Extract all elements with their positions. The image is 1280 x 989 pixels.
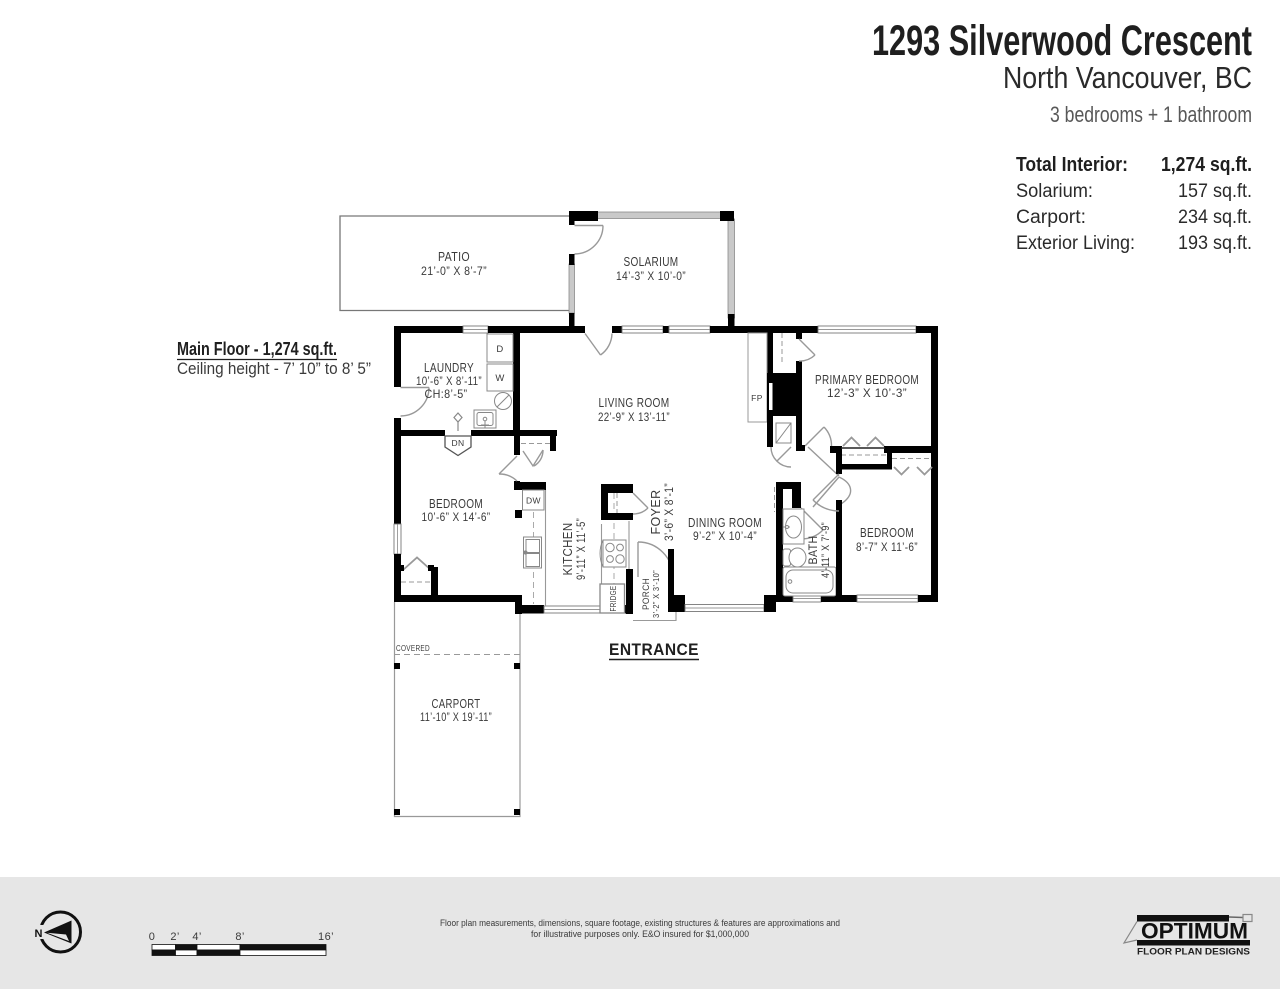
svg-text:3’-6” X 8’-1”: 3’-6” X 8’-1”: [662, 483, 676, 541]
svg-text:DN: DN: [451, 438, 464, 448]
svg-text:Main Floor - 1,274 sq.ft.: Main Floor - 1,274 sq.ft.: [177, 339, 337, 359]
svg-text:Solarium:: Solarium:: [1016, 181, 1093, 202]
svg-text:8’: 8’: [235, 931, 244, 943]
svg-text:22’-9” X 13’-11”: 22’-9” X 13’-11”: [598, 410, 670, 424]
svg-text:Carport:: Carport:: [1016, 207, 1086, 228]
svg-text:for illustrative purposes only: for illustrative purposes only. E&O insu…: [531, 929, 749, 940]
svg-text:Exterior Living:: Exterior Living:: [1016, 233, 1135, 254]
svg-text:BEDROOM: BEDROOM: [860, 526, 914, 540]
svg-text:21’-0” X 8’-7”: 21’-0” X 8’-7”: [421, 264, 487, 278]
svg-text:LAUNDRY: LAUNDRY: [424, 361, 474, 375]
svg-text:North Vancouver, BC: North Vancouver, BC: [1003, 60, 1252, 95]
svg-text:ENTRANCE: ENTRANCE: [609, 641, 699, 659]
svg-text:3 bedrooms + 1 bathroom: 3 bedrooms + 1 bathroom: [1050, 102, 1252, 127]
svg-text:FOYER: FOYER: [649, 490, 663, 535]
svg-text:KITCHEN: KITCHEN: [561, 523, 575, 576]
svg-text:DW: DW: [526, 496, 541, 506]
svg-text:11’-10” X 19’-11”: 11’-10” X 19’-11”: [420, 710, 492, 724]
svg-text:OPTIMUM: OPTIMUM: [1141, 919, 1248, 944]
svg-text:193 sq.ft.: 193 sq.ft.: [1178, 233, 1252, 254]
svg-text:SOLARIUM: SOLARIUM: [624, 255, 679, 269]
svg-text:CH:8’-5”: CH:8’-5”: [425, 387, 468, 401]
svg-text:9’-2” X 10’-4”: 9’-2” X 10’-4”: [693, 529, 757, 543]
svg-text:FP: FP: [751, 393, 763, 403]
svg-text:12’-3” X 10’-3”: 12’-3” X 10’-3”: [827, 386, 907, 400]
svg-text:10’-6” X 8’-11”: 10’-6” X 8’-11”: [416, 374, 482, 388]
svg-text:D: D: [496, 344, 503, 355]
svg-text:BEDROOM: BEDROOM: [429, 497, 483, 511]
svg-text:FLOOR PLAN DESIGNS: FLOOR PLAN DESIGNS: [1137, 947, 1250, 958]
svg-text:14’-3” X 10’-0”: 14’-3” X 10’-0”: [616, 269, 686, 283]
svg-text:0: 0: [149, 931, 156, 943]
svg-text:Ceiling height - 7’ 10” to 8’: Ceiling height - 7’ 10” to 8’ 5”: [177, 359, 371, 378]
svg-text:9’-11” X 11’-5”: 9’-11” X 11’-5”: [574, 518, 588, 580]
svg-text:8’-7” X 11’-6”: 8’-7” X 11’-6”: [856, 540, 918, 554]
svg-text:3’-2” X 3’-10”: 3’-2” X 3’-10”: [651, 570, 661, 618]
svg-text:PATIO: PATIO: [438, 250, 470, 264]
svg-text:N: N: [35, 928, 43, 940]
svg-text:234 sq.ft.: 234 sq.ft.: [1178, 207, 1252, 228]
svg-text:COVERED: COVERED: [396, 643, 430, 653]
svg-text:2’: 2’: [170, 931, 179, 943]
svg-text:BATH: BATH: [808, 536, 820, 565]
svg-text:1,274 sq.ft.: 1,274 sq.ft.: [1161, 154, 1252, 176]
svg-text:4’-11” X 7’-9”: 4’-11” X 7’-9”: [820, 522, 832, 578]
svg-text:16’: 16’: [318, 931, 334, 943]
svg-text:4’: 4’: [192, 931, 201, 943]
svg-text:W: W: [495, 373, 504, 384]
svg-text:157 sq.ft.: 157 sq.ft.: [1178, 181, 1252, 202]
svg-text:DINING ROOM: DINING ROOM: [688, 516, 762, 530]
svg-text:10’-6” X 14’-6”: 10’-6” X 14’-6”: [422, 510, 491, 524]
svg-text:PRIMARY BEDROOM: PRIMARY BEDROOM: [815, 373, 919, 387]
svg-text:Floor plan measurements, dimen: Floor plan measurements, dimensions, squ…: [440, 918, 840, 929]
svg-text:CARPORT: CARPORT: [432, 697, 481, 711]
svg-text:FRIDGE: FRIDGE: [608, 586, 618, 612]
svg-text:Total Interior:: Total Interior:: [1016, 154, 1128, 176]
svg-text:1293 Silverwood Crescent: 1293 Silverwood Crescent: [872, 17, 1252, 65]
svg-text:LIVING ROOM: LIVING ROOM: [599, 396, 670, 410]
